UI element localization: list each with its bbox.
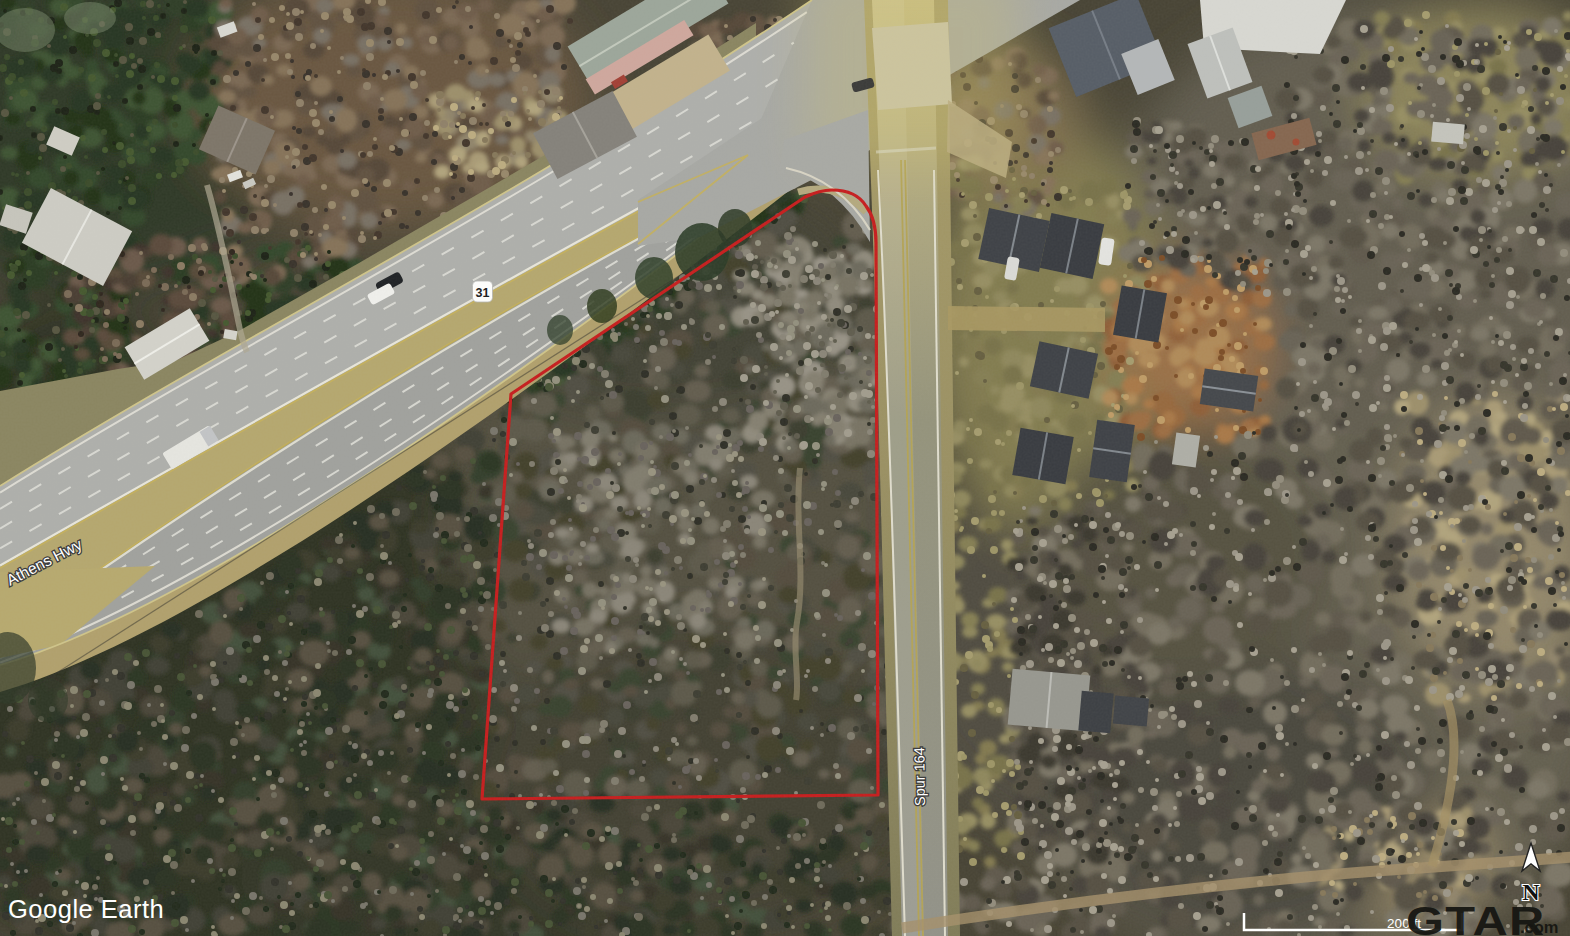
svg-text:.com: .com [1520, 918, 1559, 936]
svg-text:Spur 164: Spur 164 [911, 747, 928, 806]
svg-text:N: N [1522, 879, 1540, 905]
svg-text:Google Earth: Google Earth [8, 895, 164, 923]
svg-text:31: 31 [476, 286, 490, 300]
